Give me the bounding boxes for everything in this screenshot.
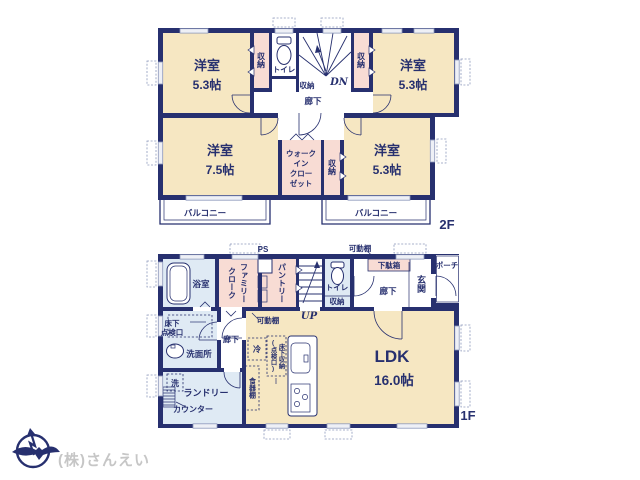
stairs-dn-label: DN [329, 77, 349, 88]
closet-left-label: 収納 [256, 51, 266, 69]
floor-2f-label: 2F [439, 217, 454, 232]
bedroom-tr-size: 5.3帖 [399, 77, 428, 92]
toilet-fixture-2f-icon [277, 37, 291, 65]
closet-small-label: 収納 [327, 158, 337, 176]
bedroom-tr-name: 洋室 [400, 58, 426, 73]
company-name: (株)さんえい [58, 451, 150, 469]
family-cloak [219, 259, 258, 307]
wic-line1: ウォーク [286, 148, 316, 158]
family-cloak-line1: ファミリー [240, 263, 249, 303]
floor-1f-label: 1F [460, 408, 475, 423]
wic-line2: イン [294, 159, 309, 168]
room-bedroom-tr [373, 33, 454, 113]
underfloor-storage-line1: 床下収納 [278, 342, 285, 370]
bedroom-bl-size: 7.5帖 [206, 162, 235, 177]
fridge-label: 冷 [253, 344, 261, 354]
kitchen-counter-icon [288, 336, 317, 416]
bedroom-bl-name: 洋室 [207, 143, 233, 158]
underfloor-check-line1: 床下 [165, 318, 180, 328]
hall-label: 廊下 [379, 286, 397, 296]
pipe-space-box [258, 259, 272, 273]
balcony-right-label: バルコニー [355, 208, 397, 218]
hallway-2f-label: 廊下 [304, 96, 322, 106]
toilet-2f-label: トイレ [273, 65, 296, 74]
north-compass-icon [12, 428, 60, 467]
bedroom-br-size: 5.3帖 [373, 162, 402, 177]
hallway-1f-label: 廊下 [223, 334, 239, 344]
underfloor-storage-line2: (点検口) [270, 340, 277, 373]
shoe-cabinet-label: 下駄箱 [378, 260, 401, 270]
laundry-label: ランドリー [183, 388, 228, 398]
shelf-top-label: 可動棚 [349, 243, 372, 253]
washroom-label: 洗面所 [186, 349, 212, 359]
closet-hall-label: 収納 [300, 80, 315, 90]
closet-right-label: 収納 [356, 51, 366, 69]
ps-label: PS [258, 245, 269, 254]
room-bedroom-tl [163, 33, 250, 113]
footer: (株)さんえい [12, 428, 150, 469]
bedroom-br-name: 洋室 [374, 143, 400, 158]
wic-line3: クロー [290, 168, 313, 178]
balcony-left-label: バルコニー [184, 208, 226, 218]
ldk-name-label: LDK [375, 347, 411, 366]
washbasin-icon [167, 344, 184, 358]
porch-label: ポーチ [436, 260, 459, 270]
bedroom-tl-size: 5.3帖 [193, 77, 222, 92]
toilet-storage-label: 収納 [330, 296, 345, 306]
pantry-label: パントリー [278, 262, 287, 303]
closet-hall-2f [272, 79, 296, 92]
hallway-lower-2f [278, 113, 344, 140]
underfloor-check-line2: 点検口 [161, 327, 184, 337]
stairs-up-label: UP [301, 311, 318, 322]
family-cloak-line2: クローク [228, 267, 237, 299]
washer-label: 洗 [171, 378, 179, 388]
wic-line4: ゼット [290, 178, 313, 188]
floor-plan-drawing: 洋室 5.3帖 洋室 5.3帖 洋室 7.5帖 洋室 5.3帖 収納 収納 収納… [0, 0, 640, 480]
ldk-size-label: 16.0帖 [374, 372, 414, 388]
floor-plan-page: 洋室 5.3帖 洋室 5.3帖 洋室 7.5帖 洋室 5.3帖 収納 収納 収納… [0, 0, 640, 480]
floor-2f-plan: 洋室 5.3帖 洋室 5.3帖 洋室 7.5帖 洋室 5.3帖 収納 収納 収納… [147, 18, 470, 232]
entrance-label: 玄関 [416, 274, 426, 294]
laundry-counter-label: カウンター [173, 404, 213, 414]
toilet-1f-label: トイレ [326, 283, 349, 292]
floor-1f-plan: 浴室 ファミリー クローク PS パントリー UP トイレ 収納 可動棚 下駄箱… [147, 243, 476, 439]
bathtub-icon [167, 263, 190, 304]
bedroom-tl-name: 洋室 [194, 58, 220, 73]
bath-label: 浴室 [192, 279, 210, 289]
shelf-mid-label: 可動棚 [257, 315, 280, 325]
